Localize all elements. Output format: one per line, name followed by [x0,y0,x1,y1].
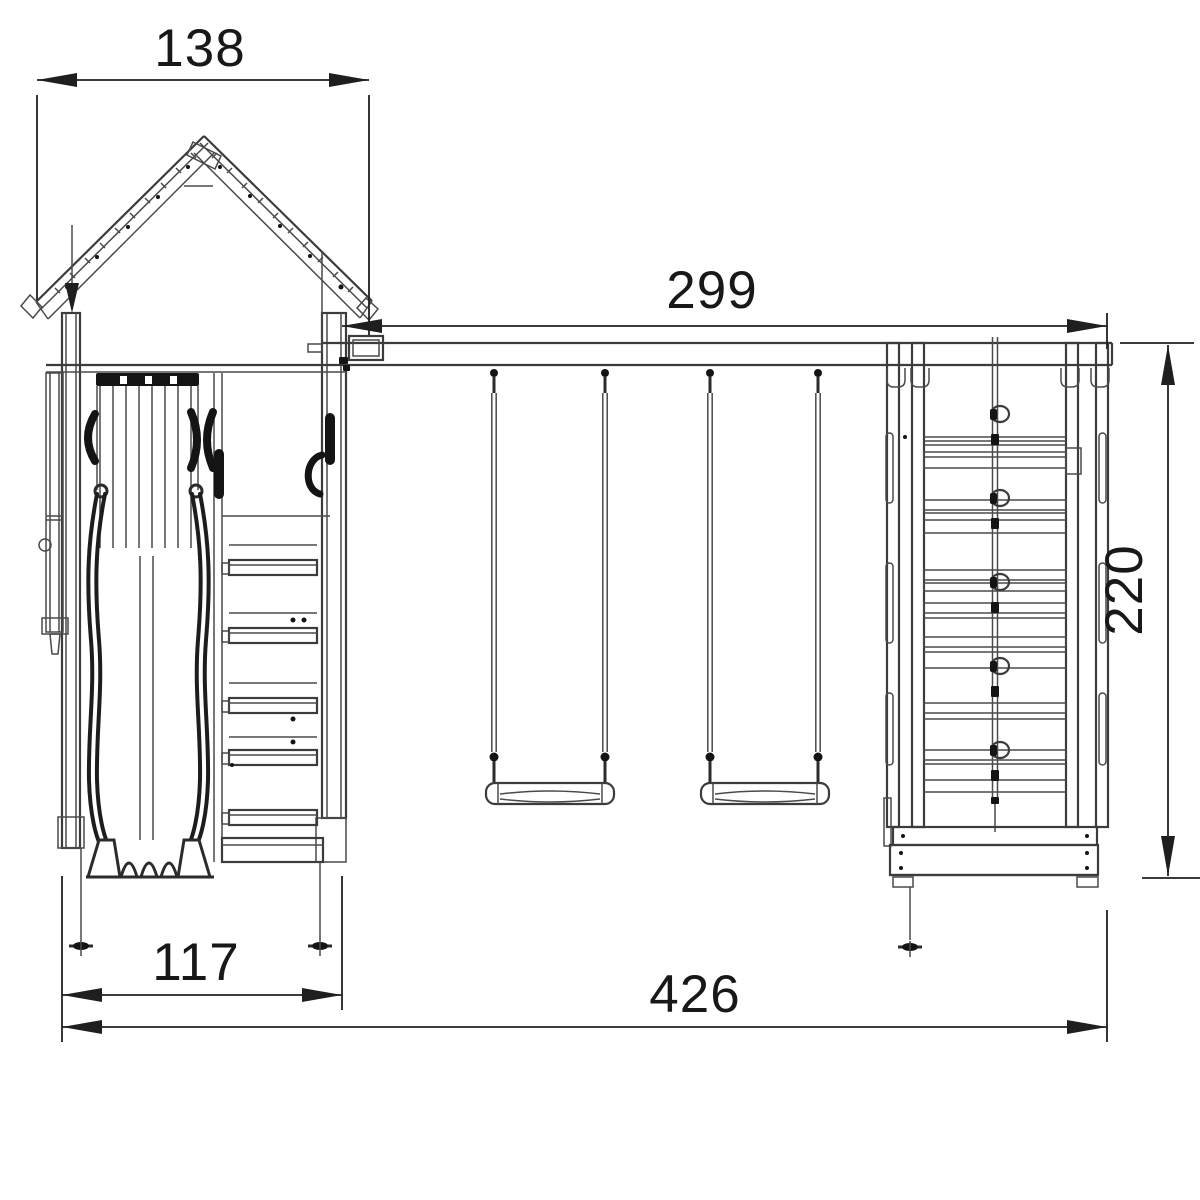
swing-2-rope-right [814,369,823,783]
swing-1 [486,369,614,804]
dim-117-label: 117 [152,933,240,992]
roof-shingle-ticks-left [55,153,196,293]
swing-1-rope-left [490,369,499,783]
tower-post-right [322,313,346,818]
tower-cleats [88,412,335,499]
dimension-tower-width: 117 [62,876,342,1042]
dim-138-label: 138 [154,19,245,78]
tower-post-left [62,313,80,848]
frame-post-inner-left [912,343,924,827]
tower-post-right-foot [316,818,346,862]
slide-back-slats [97,386,198,548]
swing-1-rope-right [601,369,610,783]
roof-shingle-ticks-right [212,153,353,292]
beam-tab [308,344,322,352]
swing-2-seat [701,783,829,804]
slide-base [86,840,214,877]
swing-1-seat [486,783,614,804]
handle-grip-middle [214,449,224,499]
c-hook-handle [308,455,322,494]
dim-426-label: 426 [649,965,740,1024]
dim-220-label: 220 [1095,544,1154,635]
dimension-wall-height: 220 [1095,343,1200,878]
swing-2-rope-left [706,369,715,783]
ladder [222,545,323,862]
climbing-rope [990,337,1009,832]
handle-grip-right [325,413,335,465]
ladder-screw-dots [230,618,307,768]
dim-299-label: 299 [666,261,757,320]
edge-cleat [88,414,95,461]
climbing-frame [884,337,1109,887]
roof-nail-dots [65,165,344,290]
x-cleat-right-half [207,412,213,468]
frame-post-inner-right [1066,343,1078,827]
anchor-stake-frame [898,887,922,957]
x-cleat-left-half [191,412,197,468]
swing-2 [701,369,829,804]
drawing-canvas: 138 299 220 117 426 [0,0,1200,1200]
tower-side-panel [39,373,68,654]
dimension-beam-length: 299 [342,261,1107,349]
playset-diagram: 138 299 220 117 426 [0,0,1200,1200]
ladder-treads [222,560,317,825]
ladder-base-board [222,838,323,862]
dimension-roof-width: 138 [37,19,369,335]
frame-side-battens [886,433,1106,765]
panel-knob [39,539,51,551]
anchor-stake-right [308,253,332,956]
